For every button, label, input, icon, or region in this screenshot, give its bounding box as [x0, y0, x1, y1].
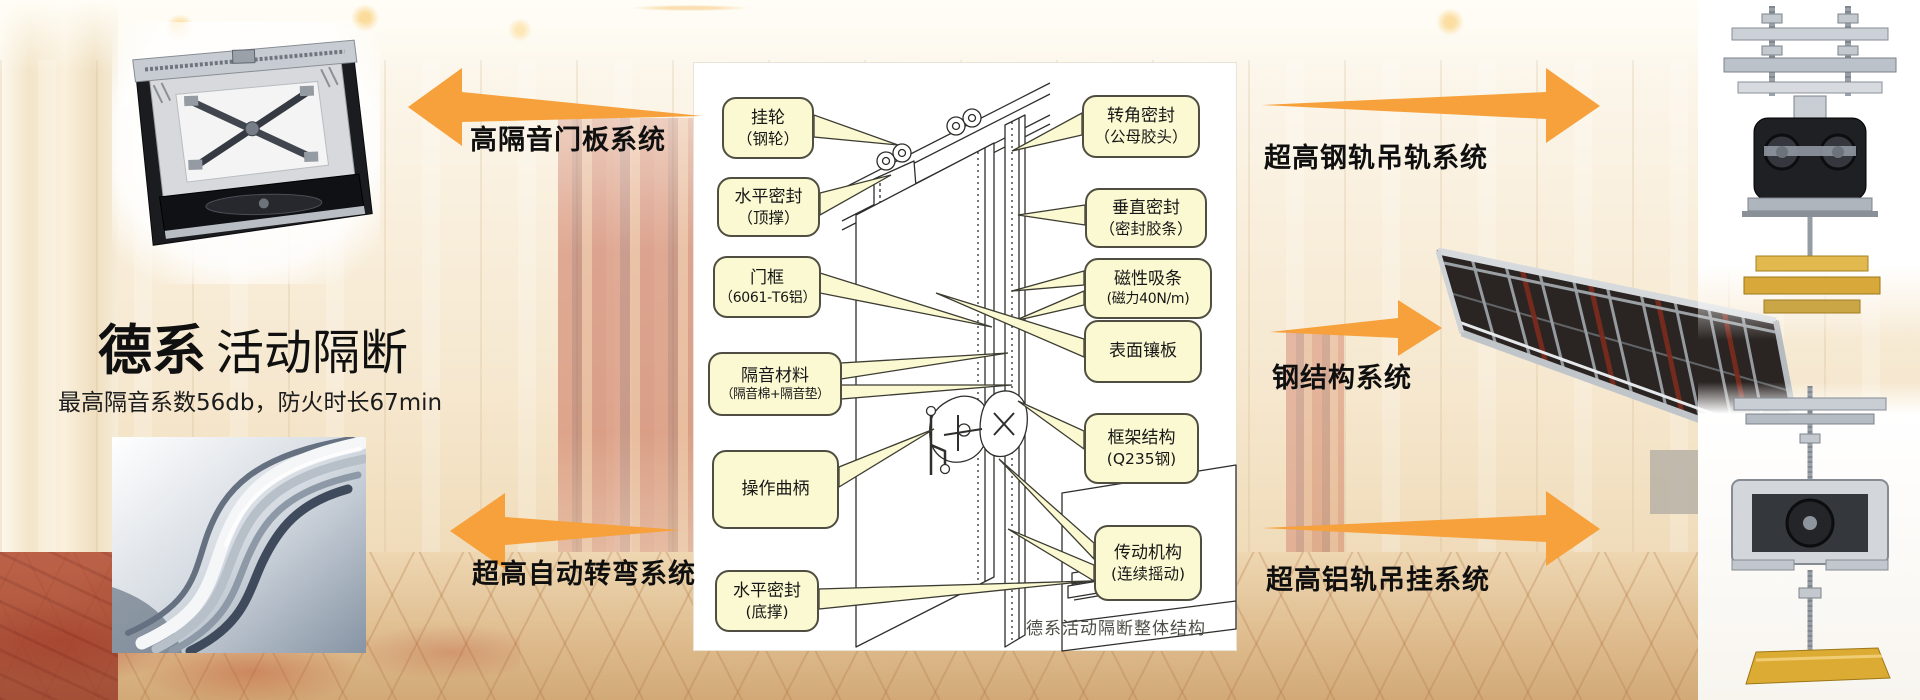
callout-magnetic-strip-sub: (磁力40N/m): [1107, 290, 1190, 308]
callout-hanging-wheel-label: 挂轮: [751, 107, 785, 129]
background-carpet-corner: [0, 552, 118, 700]
aluminum-hanger-illustration: [1698, 382, 1920, 700]
background-red-panels: [558, 118, 698, 566]
label-door-panel-system: 高隔音门板系统: [470, 118, 666, 157]
promo-banner: 德系活动隔断 最高隔音系数56db，防火时长67min: [0, 0, 1920, 700]
label-steel-structure-system: 钢结构系统: [1272, 356, 1412, 395]
callout-soundproof-material: 隔音材料 （隔音棉+隔音垫）: [708, 352, 842, 416]
callout-frame-structure-sub: (Q235钢): [1107, 449, 1176, 469]
callout-hanging-wheel: 挂轮 （钢轮）: [722, 97, 814, 159]
callout-magnetic-strip-label: 磁性吸条: [1114, 268, 1182, 290]
callout-surface-panel: 表面镶板: [1084, 320, 1202, 383]
callout-bottom-seal-sub: (底撑): [745, 602, 788, 622]
callout-hanging-wheel-sub: （钢轮）: [737, 129, 799, 149]
title-brand: 德系: [98, 319, 206, 382]
callout-door-frame-label: 门框: [750, 267, 784, 289]
callout-bottom-seal-label: 水平密封: [733, 580, 801, 602]
callout-frame-structure-label: 框架结构: [1108, 427, 1176, 449]
diagram-panel: 挂轮 （钢轮） 水平密封 （顶撑） 门框 （6061-T6铝） 隔音材料 （隔音…: [693, 62, 1237, 651]
callout-transmission-mechanism: 传动机构 (连续摇动): [1094, 525, 1202, 601]
callout-transmission-mechanism-sub: (连续摇动): [1111, 564, 1185, 584]
callout-top-seal-label: 水平密封: [735, 186, 803, 208]
callout-top-seal-sub: （顶撑）: [737, 208, 799, 228]
callout-corner-seal-label: 转角密封: [1107, 105, 1175, 127]
callout-vertical-seal-sub: （密封胶条）: [1099, 219, 1192, 239]
callout-top-seal: 水平密封 （顶撑）: [717, 177, 820, 237]
door-panel-illustration: [112, 22, 380, 284]
callout-soundproof-material-sub: （隔音棉+隔音垫）: [721, 387, 830, 404]
photo-curved-track: [112, 437, 366, 653]
page-title: 德系活动隔断: [98, 306, 408, 385]
label-auto-turn-system: 超高自动转弯系统: [472, 552, 696, 591]
photo-steel-rail-hanger: [1698, 0, 1920, 340]
callout-soundproof-material-label: 隔音材料: [741, 365, 809, 387]
callout-door-frame: 门框 （6061-T6铝）: [713, 256, 821, 318]
label-steel-rail-system: 超高钢轨吊轨系统: [1264, 136, 1488, 175]
callout-operating-crank-label: 操作曲柄: [742, 478, 810, 500]
callout-door-frame-sub: （6061-T6铝）: [719, 289, 815, 307]
callout-operating-crank: 操作曲柄: [712, 450, 839, 529]
curved-track-illustration: [112, 437, 366, 653]
photo-door-panel-top: [112, 22, 380, 284]
steel-hanger-illustration: [1698, 0, 1920, 340]
subtitle-specs: 最高隔音系数56db，防火时长67min: [58, 383, 442, 417]
callout-magnetic-strip: 磁性吸条 (磁力40N/m): [1084, 258, 1212, 319]
callout-vertical-seal-label: 垂直密封: [1112, 197, 1180, 219]
diagram-caption: 德系活动隔断整体结构: [994, 614, 1238, 639]
title-product: 活动隔断: [216, 325, 408, 381]
photo-aluminum-rail-hanger: [1698, 382, 1920, 700]
callout-vertical-seal: 垂直密封 （密封胶条）: [1085, 188, 1207, 248]
callout-bottom-seal: 水平密封 (底撑): [715, 570, 819, 632]
callout-corner-seal: 转角密封 （公母胶头）: [1082, 95, 1200, 158]
callout-frame-structure: 框架结构 (Q235钢): [1084, 413, 1199, 484]
callout-surface-panel-label: 表面镶板: [1109, 340, 1177, 362]
callout-transmission-mechanism-label: 传动机构: [1114, 542, 1182, 564]
label-aluminum-rail-system: 超高铝轨吊挂系统: [1266, 558, 1490, 597]
callout-corner-seal-sub: （公母胶头）: [1094, 127, 1187, 147]
